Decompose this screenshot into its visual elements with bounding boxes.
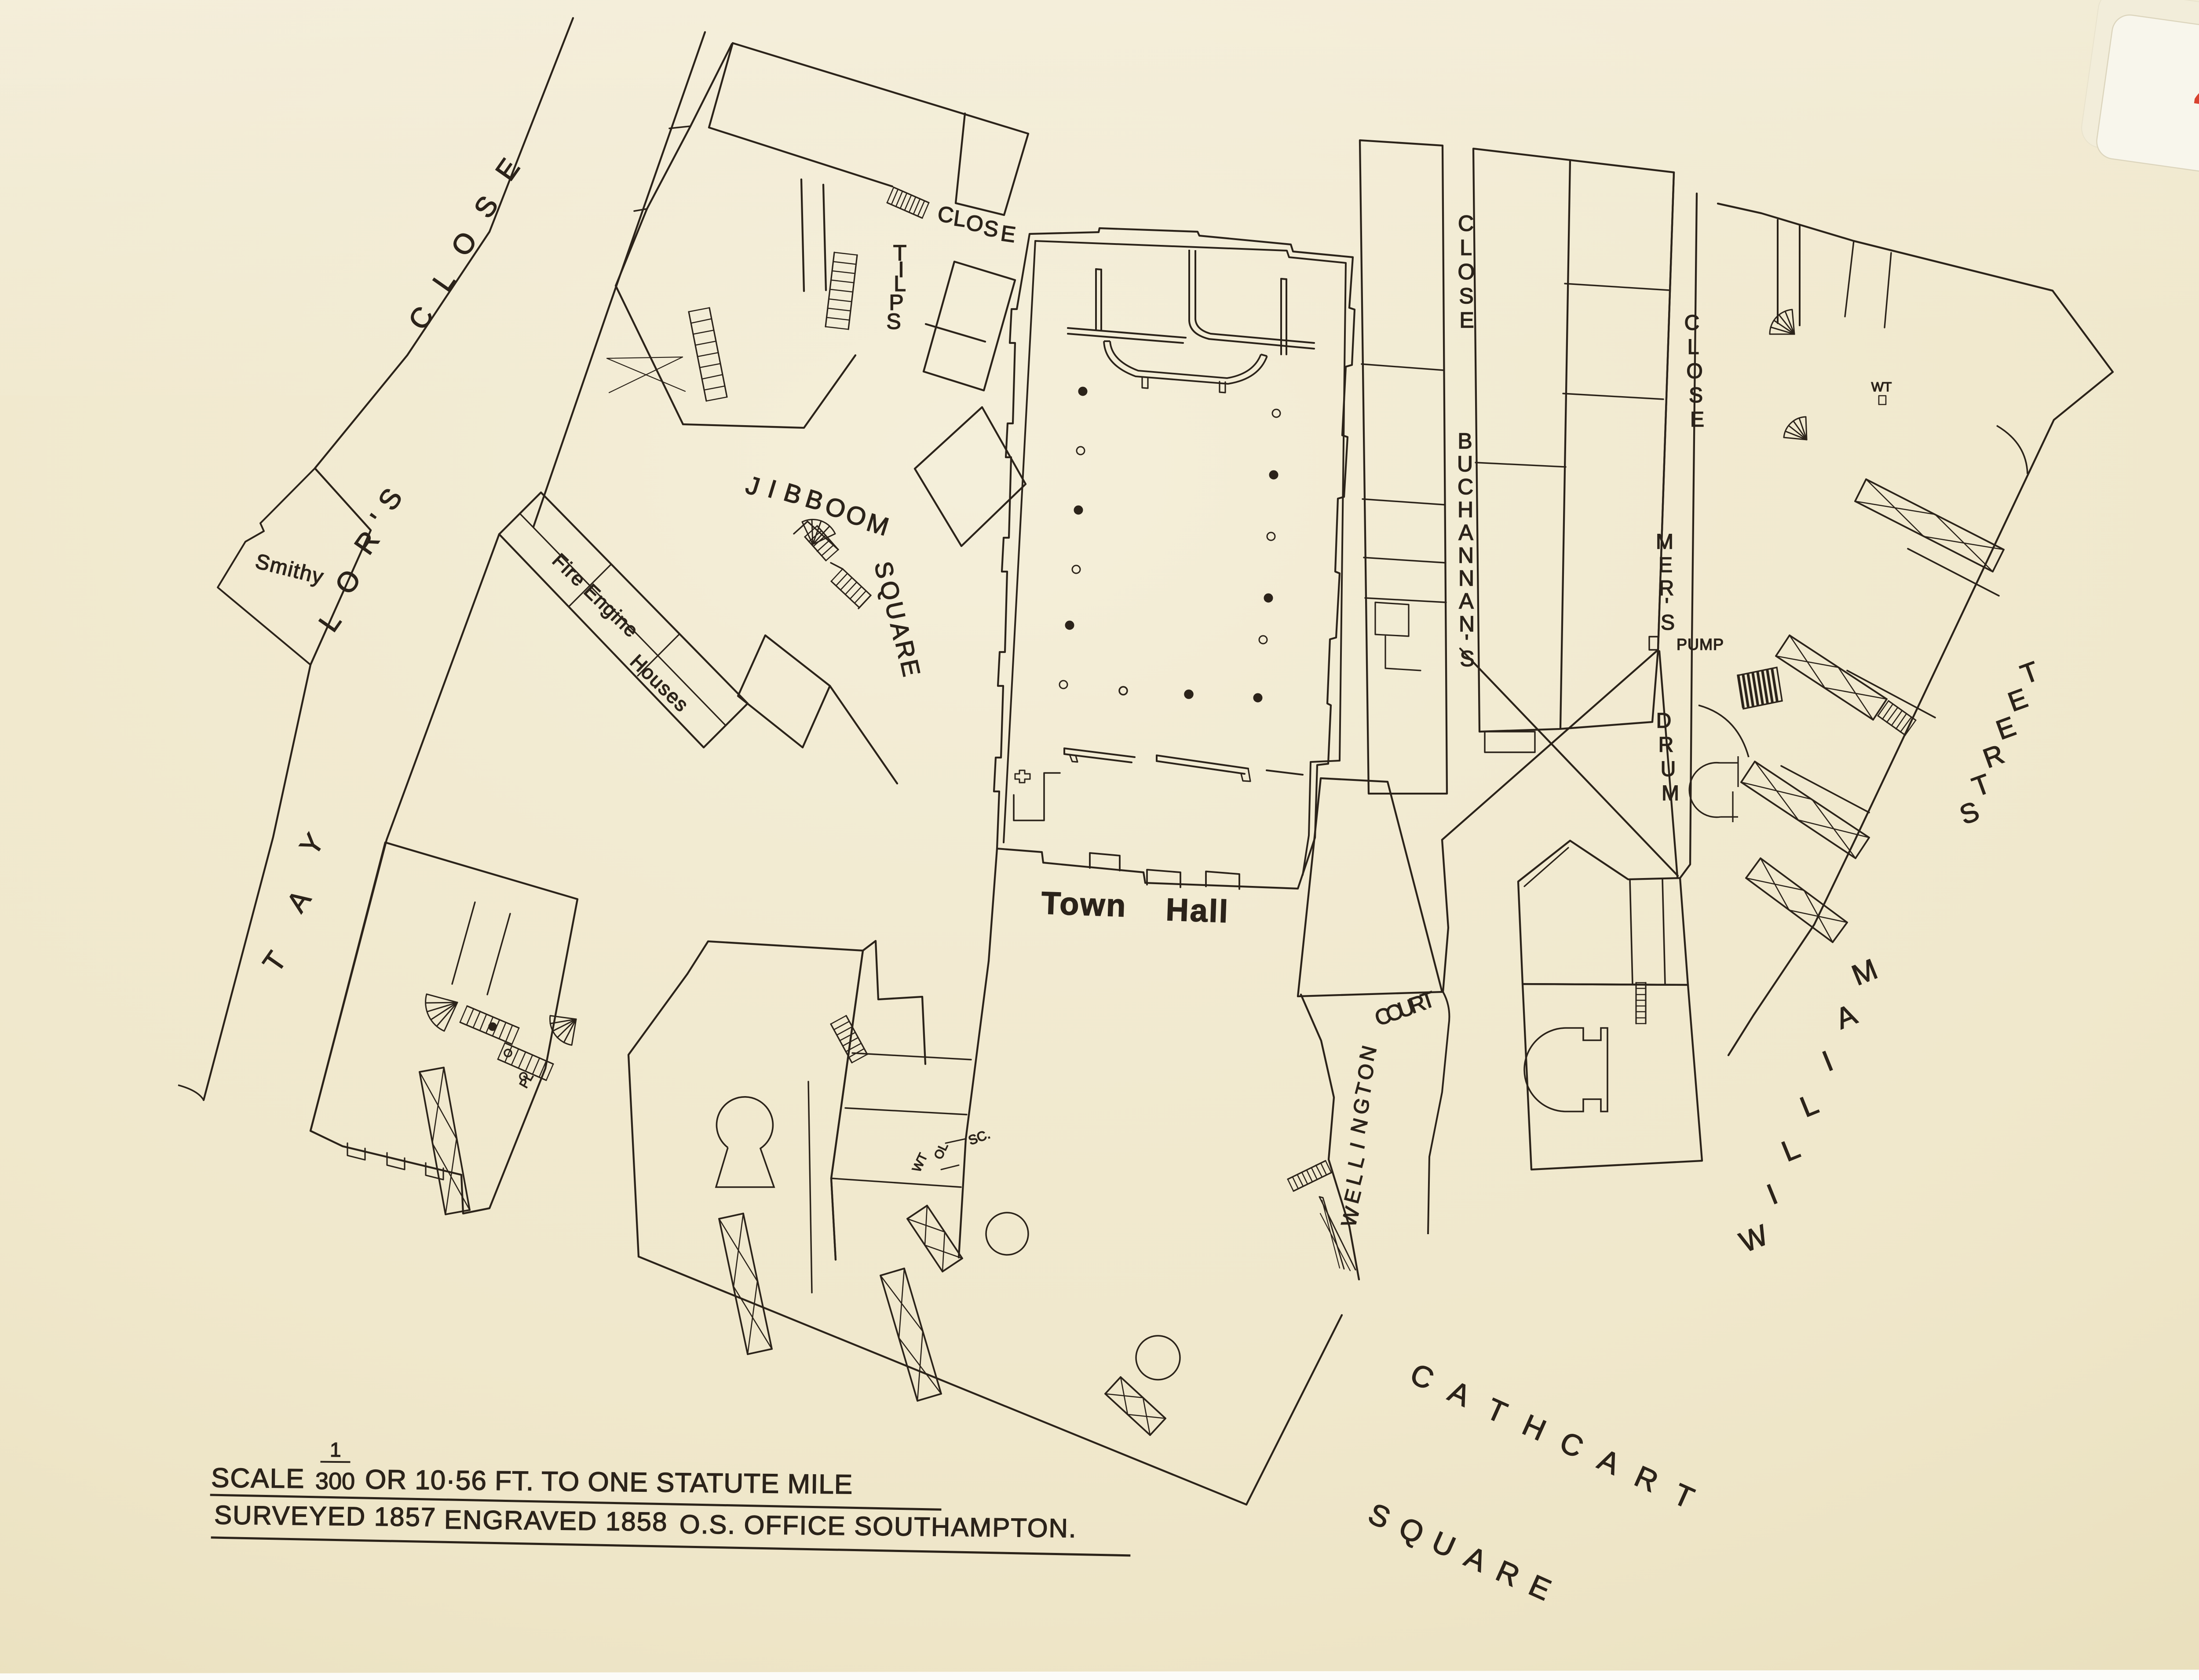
svg-text:L: L <box>1688 335 1699 359</box>
svg-text:S: S <box>1689 384 1703 407</box>
svg-text:E: E <box>1658 554 1673 577</box>
svg-text:C: C <box>1458 211 1474 236</box>
svg-text:O: O <box>1458 259 1475 284</box>
svg-text:E: E <box>1459 308 1474 332</box>
svg-text:OR 10·56 FT. TO ONE STATUTE MI: OR 10·56 FT. TO ONE STATUTE MILE <box>365 1465 853 1500</box>
svg-text:ENGRAVED 1858: ENGRAVED 1858 <box>444 1505 668 1536</box>
svg-text:D: D <box>1656 709 1672 732</box>
svg-text:M: M <box>1662 782 1679 805</box>
svg-text:1: 1 <box>330 1438 341 1461</box>
svg-text:Town: Town <box>1041 886 1127 924</box>
svg-text:PUMP: PUMP <box>1677 635 1724 653</box>
svg-text:WT: WT <box>1871 380 1892 394</box>
svg-text:N: N <box>1458 543 1474 568</box>
svg-text:300: 300 <box>315 1468 355 1494</box>
svg-text:O: O <box>1686 360 1702 383</box>
svg-text:T: T <box>893 241 907 265</box>
svg-text:U: U <box>1457 452 1473 476</box>
svg-text:B: B <box>1457 429 1472 453</box>
svg-text:C: C <box>936 201 956 228</box>
svg-text:L: L <box>1460 235 1472 260</box>
svg-text:SCALE: SCALE <box>211 1463 305 1494</box>
svg-text:N: N <box>1458 566 1474 590</box>
svg-text:A: A <box>1459 589 1474 613</box>
svg-text:Hall: Hall <box>1165 892 1230 929</box>
svg-text:H: H <box>1457 497 1473 522</box>
svg-text:A: A <box>1458 520 1473 545</box>
svg-text:U: U <box>1661 758 1676 781</box>
svg-text:R: R <box>1658 733 1674 757</box>
svg-text:S: S <box>1459 284 1473 308</box>
svg-text:C: C <box>1457 474 1473 499</box>
svg-text:C: C <box>1684 311 1700 335</box>
svg-text:S: S <box>1661 611 1675 634</box>
svg-text:M: M <box>1656 530 1673 554</box>
svg-text:E: E <box>1690 408 1704 431</box>
svg-text:O: O <box>964 210 985 237</box>
svg-text:SURVEYED 1857: SURVEYED 1857 <box>214 1500 437 1532</box>
svg-text:O.S. OFFICE SOUTHAMPTON.: O.S. OFFICE SOUTHAMPTON. <box>679 1509 1077 1543</box>
